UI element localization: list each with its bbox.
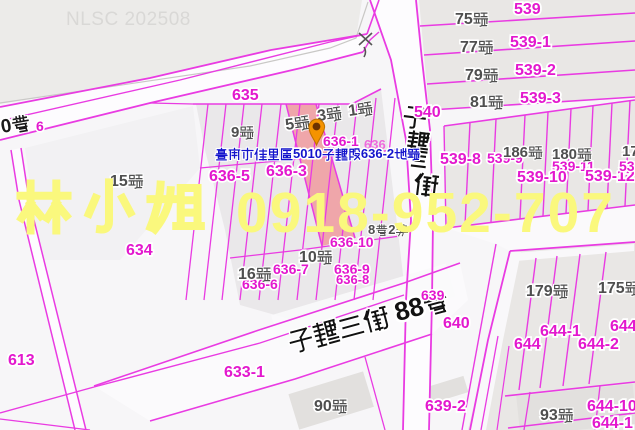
svg-text:539-8: 539-8	[440, 151, 481, 168]
svg-text:636-8: 636-8	[336, 272, 369, 287]
svg-text:NLSC 202508: NLSC 202508	[66, 9, 191, 30]
svg-text:0918-952-707: 0918-952-707	[236, 181, 615, 245]
svg-text:540: 540	[414, 104, 441, 121]
svg-text:16: 16	[238, 266, 256, 283]
svg-text:180: 180	[552, 146, 577, 163]
svg-text:179: 179	[526, 283, 553, 300]
svg-text:79: 79	[465, 67, 483, 84]
svg-text:639-2: 639-2	[425, 398, 466, 415]
svg-text:633-1: 633-1	[224, 364, 265, 381]
svg-text:186: 186	[503, 144, 528, 161]
svg-text:636-2: 636-2	[361, 146, 394, 161]
svg-text:93: 93	[540, 407, 558, 424]
svg-text:644-4: 644-4	[610, 318, 635, 335]
svg-text:539-3: 539-3	[520, 90, 561, 107]
svg-text:613: 613	[8, 352, 35, 369]
svg-text:175: 175	[598, 280, 625, 297]
svg-text:90: 90	[314, 398, 332, 415]
svg-text:644-1: 644-1	[540, 323, 581, 340]
svg-text:17: 17	[622, 143, 635, 160]
svg-text:644-1: 644-1	[592, 415, 633, 430]
svg-text:539-1: 539-1	[510, 34, 551, 51]
svg-text:539-13: 539-13	[619, 158, 635, 174]
svg-text:640: 640	[443, 315, 470, 332]
svg-text:5010: 5010	[293, 146, 322, 161]
svg-text:6: 6	[36, 118, 44, 134]
svg-text:644-2: 644-2	[578, 336, 619, 353]
svg-text:639: 639	[421, 287, 445, 303]
svg-text:644-10: 644-10	[587, 398, 635, 415]
svg-text:81: 81	[470, 94, 488, 111]
svg-text:635: 635	[232, 87, 259, 104]
svg-text:634: 634	[126, 242, 153, 259]
svg-text:636-3: 636-3	[266, 163, 307, 180]
svg-text:77: 77	[460, 39, 478, 56]
svg-text:539-2: 539-2	[515, 62, 556, 79]
svg-text:9: 9	[231, 124, 239, 141]
svg-text:644: 644	[514, 336, 541, 353]
svg-text:636-1: 636-1	[323, 133, 359, 149]
svg-text:539: 539	[514, 1, 541, 18]
svg-text:10: 10	[299, 249, 317, 266]
svg-text:75: 75	[455, 11, 473, 28]
